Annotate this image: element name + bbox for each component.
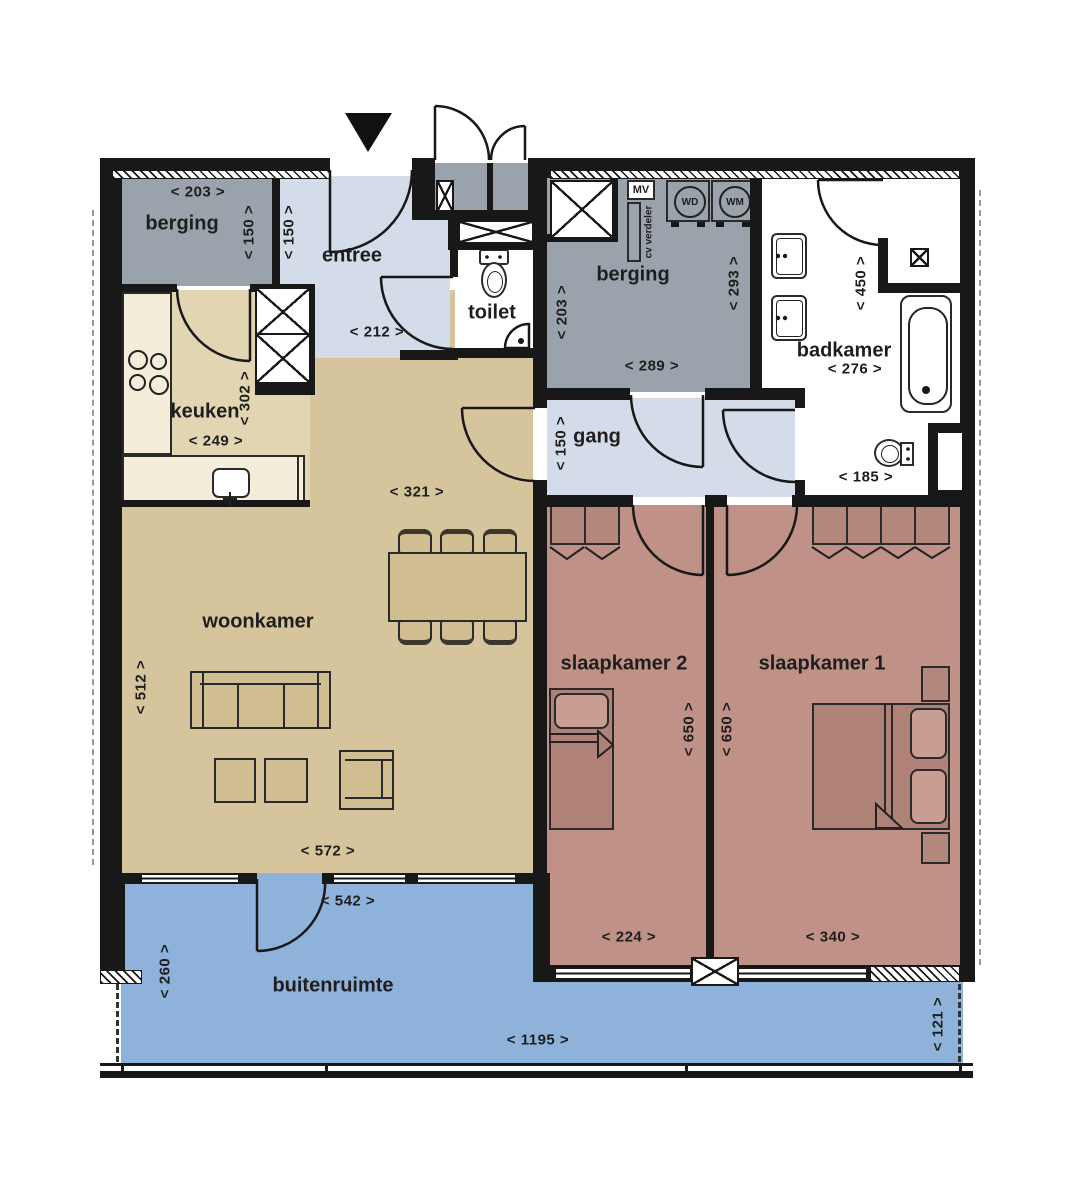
dining-chair-icon (440, 529, 474, 554)
shaft-icon (436, 180, 454, 212)
window (556, 967, 690, 980)
wall (795, 395, 805, 408)
stool-icon (214, 758, 256, 803)
shower-drain-icon (910, 248, 929, 267)
dining-chair-icon (440, 620, 474, 645)
railing-tick (325, 1063, 328, 1078)
pillow-icon (910, 708, 947, 759)
label-slaapkamer-2: slaapkamer 2 (561, 653, 688, 676)
sofa-cushion-line (237, 685, 239, 729)
wall (705, 388, 762, 400)
window (737, 967, 866, 980)
washbasin-inner (776, 300, 803, 337)
sofa-arm-line (317, 671, 319, 729)
railing-line (100, 1063, 973, 1066)
cooktop-burner-icon (129, 374, 146, 391)
railing-dashed (958, 984, 961, 1062)
label-buitenruimte: buitenruimte (272, 975, 393, 998)
wardrobe-divider (584, 503, 586, 545)
wardrobe-divider (880, 503, 882, 545)
label-slaapkamer-1: slaapkamer 1 (759, 653, 886, 676)
dim-buitenruimte-deur: < 542 > (321, 893, 375, 910)
wardrobe-divider (846, 503, 848, 545)
mv-label: MV (633, 184, 650, 196)
meterkast-rechts (493, 163, 528, 211)
dim-keuken-width: < 249 > (189, 433, 243, 450)
label-berging-links: berging (145, 213, 218, 236)
counter-front-edge (122, 500, 310, 507)
dim-slaapkamer-1-width: < 340 > (806, 929, 860, 946)
stool-icon (264, 758, 308, 803)
dim-berging-rechts-rechts: < 293 > (726, 256, 743, 310)
wall (750, 158, 762, 400)
wall (450, 348, 533, 358)
dim-berging-links-width: < 203 > (171, 184, 225, 201)
dim-buitenruimte-rechts: < 121 > (930, 997, 947, 1051)
wall (706, 495, 714, 982)
appliance-foot (742, 222, 750, 227)
toilet-bowl-inner (487, 271, 503, 293)
dim-berging-rechts-width: < 289 > (625, 358, 679, 375)
wd-label: WD (682, 197, 699, 208)
wall (533, 495, 633, 507)
label-badkamer: badkamer (797, 340, 892, 363)
window-post (405, 873, 418, 884)
railing-line (100, 1071, 973, 1078)
window-post (238, 873, 257, 884)
floor-plan: MV WD WM (0, 0, 1080, 1179)
insulation-hatch (100, 970, 142, 984)
label-gang: gang (573, 426, 621, 449)
mv-unit: MV (627, 180, 655, 200)
bed-sheet-line (891, 705, 893, 828)
pillow-icon (910, 769, 947, 824)
label-entree: entree (322, 245, 382, 268)
bathroom-toilet-tank (900, 442, 914, 466)
site-boundary-dashed (92, 210, 94, 865)
dim-woonkamer-width-onder: < 572 > (301, 843, 355, 860)
wall (412, 158, 435, 220)
nightstand-icon (921, 666, 950, 702)
dim-buitenruimte-links: < 260 > (157, 944, 174, 998)
cooktop-burner-icon (128, 350, 148, 370)
dim-berging-rechts-links: < 203 > (554, 285, 571, 339)
railing-tick (685, 1063, 688, 1078)
shaft-icon (691, 957, 739, 986)
armchair-line (345, 797, 392, 799)
dim-slaapkamer-1-height: < 650 > (719, 702, 736, 756)
wardrobe-divider (914, 503, 916, 545)
kitchen-counter-left (122, 292, 172, 455)
armchair-line (345, 759, 392, 761)
dim-slaapkamer-2-width: < 224 > (602, 929, 656, 946)
dim-woonkamer-height: < 512 > (133, 660, 150, 714)
cooktop-burner-icon (149, 375, 169, 395)
label-keuken: keuken (171, 401, 240, 424)
shaft-icon (255, 287, 311, 337)
insulation-hatch (870, 966, 960, 982)
dim-badkamer-width: < 276 > (828, 361, 882, 378)
door-communal-double (435, 106, 525, 160)
window (418, 873, 515, 884)
dim-slaapkamer-2-height: < 650 > (681, 702, 698, 756)
appliance-foot (716, 222, 724, 227)
appliance-foot (697, 222, 705, 227)
wasdroger-drum-icon: WD (674, 186, 706, 218)
bathtub-inner (908, 307, 948, 405)
wall (533, 388, 630, 400)
wm-label: WM (726, 197, 744, 208)
insulation-hatch (550, 170, 960, 179)
wall (100, 873, 125, 972)
window (334, 873, 405, 884)
appliance-foot (671, 222, 679, 227)
pillow-icon (554, 693, 609, 729)
dim-badkamer-height: < 450 > (853, 256, 870, 310)
wall (487, 163, 493, 210)
sofa-back-line (200, 683, 321, 685)
shaft-icon (255, 333, 311, 384)
dining-chair-icon (398, 620, 432, 645)
wall (533, 480, 547, 884)
sofa-cushion-line (283, 685, 285, 729)
kitchen-sink-icon (212, 468, 250, 498)
balcony-door-opening (257, 873, 322, 884)
dim-woonkamer-width-boven: < 321 > (390, 484, 444, 501)
dining-chair-icon (398, 529, 432, 554)
label-cv-verdeler: cv verdeler (644, 206, 655, 259)
niche-inner (938, 433, 962, 490)
nightstand-icon (921, 832, 950, 864)
dim-entree-width: < 212 > (350, 324, 404, 341)
wall (960, 158, 975, 982)
dim-badkamer-width-onder: < 185 > (839, 469, 893, 486)
wall (100, 158, 122, 884)
bathroom-toilet-inner (881, 445, 899, 463)
dim-buitenruimte-width: < 1195 > (507, 1032, 569, 1049)
window (142, 873, 238, 884)
railing-dashed (116, 984, 119, 1062)
sofa-arm-line (202, 671, 204, 729)
entrance-arrow-icon (345, 113, 392, 152)
railing-tick (121, 1063, 124, 1078)
railing-tick (959, 1063, 962, 1078)
room-buitenruimte-rechts (533, 980, 963, 1064)
insulation-hatch (112, 170, 330, 179)
dim-gang-height: < 150 > (553, 416, 570, 470)
dining-table-icon (388, 552, 527, 622)
sofa-icon (190, 671, 331, 729)
armchair-line (381, 761, 383, 797)
bed-sheet-line (884, 705, 886, 828)
shaft-icon (550, 180, 614, 239)
dim-berging-links-height: < 150 > (241, 205, 258, 259)
wall (878, 283, 960, 293)
shaft-icon (458, 220, 534, 244)
window-post (322, 873, 334, 884)
washbasin-inner (776, 238, 803, 275)
window-post (515, 873, 533, 884)
site-boundary-dashed (979, 190, 981, 965)
wall (122, 284, 177, 292)
cooktop-burner-icon (150, 353, 167, 370)
dim-keuken-height: < 302 > (237, 371, 254, 425)
label-woonkamer: woonkamer (202, 611, 313, 634)
label-berging-rechts: berging (596, 264, 669, 287)
label-toilet: toilet (468, 302, 516, 325)
dining-chair-icon (483, 620, 517, 645)
dim-entree-height: < 150 > (281, 205, 298, 259)
counter-edge-line (297, 457, 299, 500)
dining-chair-icon (483, 529, 517, 554)
cv-verdeler-unit (627, 202, 641, 262)
wasmachine-drum-icon: WM (719, 186, 751, 218)
window-post (122, 873, 142, 884)
